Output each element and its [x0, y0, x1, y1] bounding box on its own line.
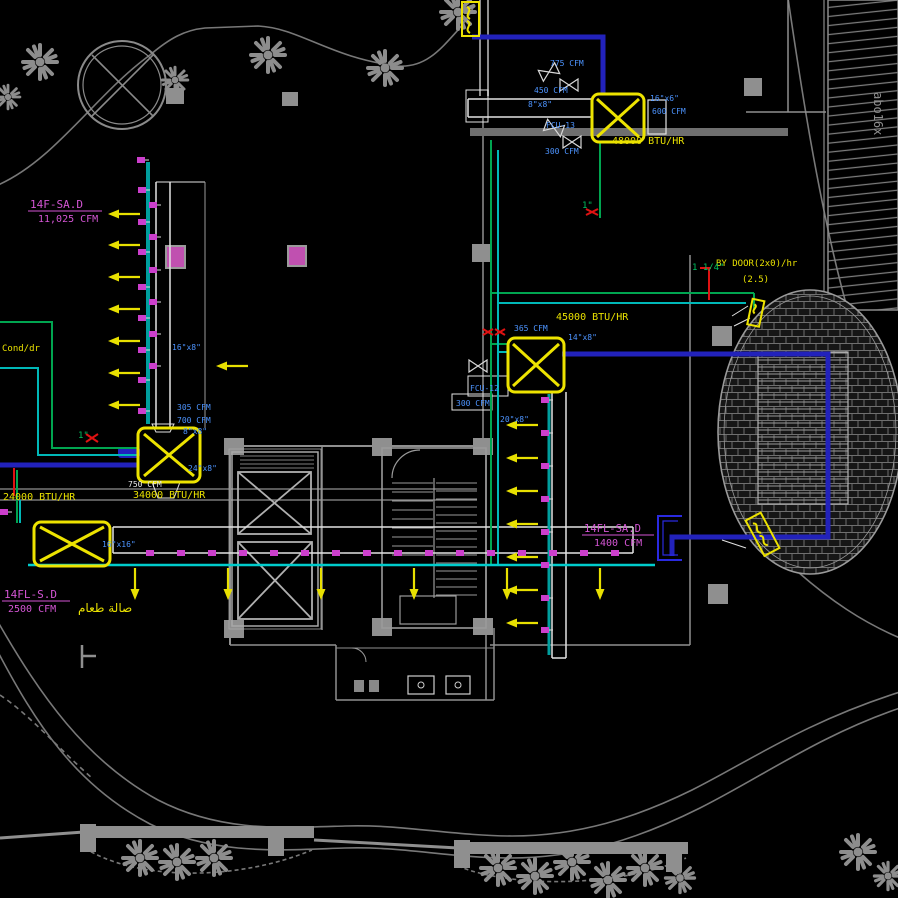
column — [708, 584, 728, 604]
drawing-canvas: abo16x — [0, 0, 898, 898]
tree-icon — [518, 859, 552, 893]
column — [473, 618, 493, 635]
tree-icon — [160, 845, 194, 879]
cfm-775: 775 CFM — [550, 59, 584, 68]
tree-icon — [197, 841, 231, 875]
size-8x8-left: 8"x8" — [183, 427, 207, 436]
column — [472, 244, 490, 262]
pipe-size-1a: 1" — [582, 201, 593, 211]
size-14x8: 14"x8" — [568, 333, 597, 342]
column — [712, 326, 732, 346]
tree-icon — [841, 835, 875, 869]
condensate-label: Cond/dr — [2, 344, 41, 354]
fcu-left-capacity: 34000 BTU/HR — [133, 490, 206, 501]
door-note-2: (2.5) — [742, 275, 769, 285]
fcu-top-capacity: 48000 BTU/HR — [612, 136, 685, 147]
fcu-center-capacity: 45000 BTU/HR — [556, 312, 629, 323]
column — [166, 88, 184, 104]
size-16x16: 16"x16" — [102, 540, 136, 549]
tree-icon — [481, 851, 515, 885]
cfm-305: 305 CFM — [177, 403, 211, 412]
zone2-name: 14FL-S.D — [4, 588, 57, 601]
size-24x8: 24"x8" — [188, 464, 217, 473]
tag-fcu13: FCU-13 — [546, 121, 575, 130]
tree-icon — [628, 851, 662, 885]
cfm-365: 365 CFM — [514, 324, 548, 333]
tree-icon — [368, 51, 402, 85]
cfm-300b: 300 CFM — [456, 399, 490, 408]
cad-hvac-floor-plan: abo16x — [0, 0, 898, 898]
column — [744, 78, 762, 96]
oval-inner-grille — [758, 352, 848, 504]
cfm-450: 450 CFM — [534, 86, 568, 95]
balcony-louver: abo16x — [824, 0, 898, 310]
watermark-text: abo16x — [871, 92, 885, 135]
zone2-cfm: 2500 CFM — [8, 604, 56, 615]
planter-oval — [718, 290, 898, 574]
cfm-300a: 300 CFM — [545, 147, 579, 156]
column-magenta — [288, 246, 306, 266]
size-20x8: 20"x8" — [500, 415, 529, 424]
cfm-750: 750 CFM — [128, 480, 162, 489]
tree-icon — [251, 38, 285, 72]
size-16x8: 16"x8" — [172, 343, 201, 352]
tree-icon — [23, 45, 57, 79]
cfm-600: 600 CFM — [652, 107, 686, 116]
size-8x8-top: 8"x8" — [528, 100, 552, 109]
pipe-size-1b: 1" — [78, 431, 89, 441]
size-16x6: 16"x6" — [650, 94, 679, 103]
zone1-name: 14F-SA.D — [30, 198, 83, 211]
door-note-1: BY DOOR(2x0)/hr — [716, 259, 798, 269]
zone2-room-name-arabic: صالة طعام — [78, 601, 132, 615]
fcu-small-capacity: 24000 BTU/HR — [3, 492, 76, 503]
tree-icon — [123, 841, 157, 875]
zone3-name: 14FL-SA.D — [584, 523, 641, 535]
column — [282, 92, 298, 106]
column-magenta — [166, 246, 185, 268]
tree-icon — [591, 863, 625, 897]
tag-fcu12: FCU-12 — [470, 384, 499, 393]
zone3-cfm: 1400 CFM — [594, 538, 642, 549]
cfm-700: 700 CFM — [177, 416, 211, 425]
zone1-cfm: 11,025 CFM — [38, 214, 98, 225]
pipe-size-114: 1 1/4" — [692, 263, 725, 273]
